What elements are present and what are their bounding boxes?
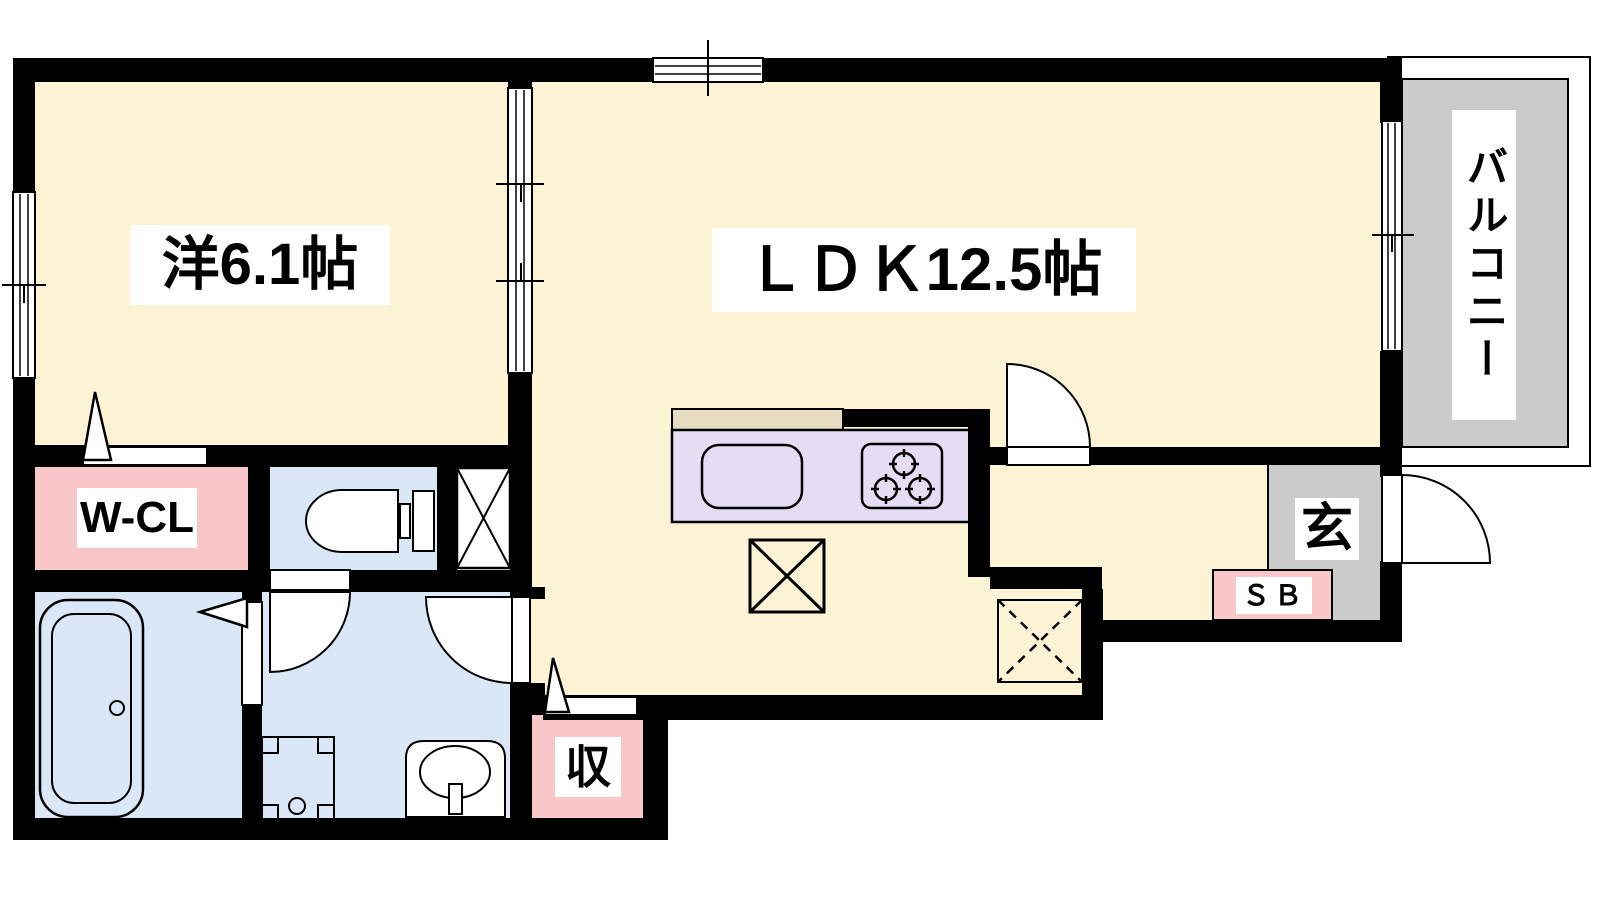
ldk-hall-door-leaf — [1007, 447, 1090, 465]
wall-bottom-right — [1100, 620, 1402, 642]
storage-text: 収 — [565, 744, 611, 790]
wall-storage-left — [510, 683, 532, 840]
entrance-door-swing — [1402, 475, 1490, 563]
wall-right-c — [1380, 561, 1402, 642]
pipe-space-box — [457, 468, 510, 568]
vanity-sink — [406, 741, 505, 817]
label-shoe-box: ＳＢ — [1236, 577, 1312, 614]
toilet — [306, 490, 434, 552]
wall-wcl-toilet — [248, 467, 270, 570]
toilet-door-leaf — [270, 570, 350, 590]
shoe-box-text: ＳＢ — [1242, 582, 1306, 610]
label-balcony: バルコニー — [1452, 110, 1516, 420]
balcony-text: バルコニー — [1463, 145, 1505, 385]
wall-right-a — [1380, 58, 1402, 123]
wall-storage-left2 — [530, 683, 545, 715]
western-room-text: 洋6.1帖 — [162, 236, 359, 294]
label-ldk: ＬＤＫ12.5帖 — [712, 228, 1136, 312]
label-walk-in-closet: W-CL — [77, 488, 197, 548]
wall-washdoor-top — [530, 587, 545, 599]
wcl-text: W-CL — [80, 496, 194, 540]
wall-kitchen-top — [843, 409, 990, 427]
wall-sanitary-mid — [13, 570, 510, 592]
ldk-text: ＬＤＫ12.5帖 — [746, 240, 1103, 300]
floor-bathroom — [35, 592, 242, 818]
wall-bottom-left — [13, 818, 668, 840]
wall-hall-bottom — [990, 567, 1102, 589]
floorplan: 洋6.1帖 ＬＤＫ12.5帖 バルコニー W-CL 玄 ＳＢ 収 — [0, 0, 1600, 900]
washroom-door-leaf — [512, 597, 530, 683]
wall-storage-right — [643, 717, 668, 818]
label-storage: 収 — [555, 737, 621, 797]
label-western-room: 洋6.1帖 — [130, 225, 390, 305]
wall-toilet-ps — [437, 467, 457, 570]
floorplan-drawing — [0, 0, 1600, 900]
kitchen-counter-top — [672, 409, 843, 430]
wall-right-b — [1380, 351, 1402, 477]
wall-right-column — [510, 445, 532, 597]
wall-kitchen-right — [968, 427, 990, 577]
entrance-text: 玄 — [1301, 503, 1353, 555]
entrance-door-leaf — [1382, 475, 1402, 563]
wall-nook-right — [1082, 589, 1103, 720]
label-entrance: 玄 — [1295, 498, 1359, 560]
